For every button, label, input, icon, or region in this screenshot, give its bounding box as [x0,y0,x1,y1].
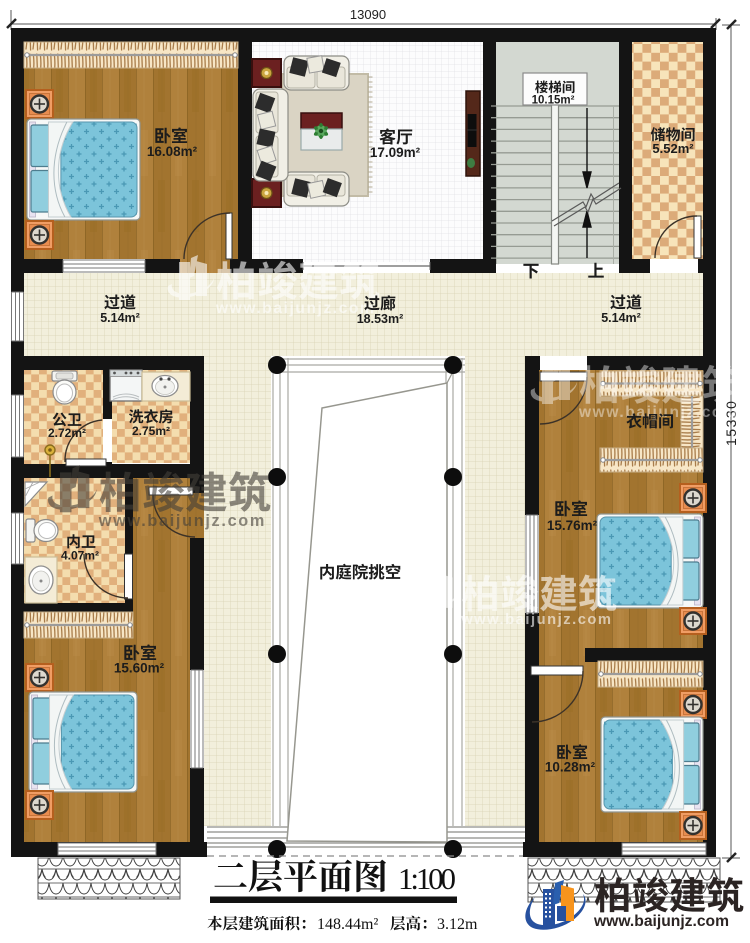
svg-text:17.09m²: 17.09m² [370,145,421,160]
svg-text:15.60m²: 15.60m² [114,661,165,676]
svg-text:2.72m²: 2.72m² [48,426,86,440]
svg-text:10.15m²: 10.15m² [532,95,575,107]
svg-text:5.52m²: 5.52m² [652,141,694,156]
svg-text:15.76m²: 15.76m² [547,518,598,533]
svg-text:13090: 13090 [350,7,386,22]
svg-text:5.14m²: 5.14m² [601,311,641,325]
svg-text:5.14m²: 5.14m² [100,311,140,325]
svg-text:10.28m²: 10.28m² [545,760,596,775]
svg-text:3.12m: 3.12m [437,916,478,933]
svg-text:16.08m²: 16.08m² [147,144,198,159]
svg-text:2.75m²: 2.75m² [132,424,170,438]
svg-text:18.53m²: 18.53m² [357,312,404,326]
svg-text:1:100: 1:100 [398,861,456,896]
svg-text:4.07m²: 4.07m² [61,549,99,563]
svg-text:148.44m²: 148.44m² [317,916,378,933]
svg-text:www.baijunjz.com: www.baijunjz.com [593,913,729,930]
